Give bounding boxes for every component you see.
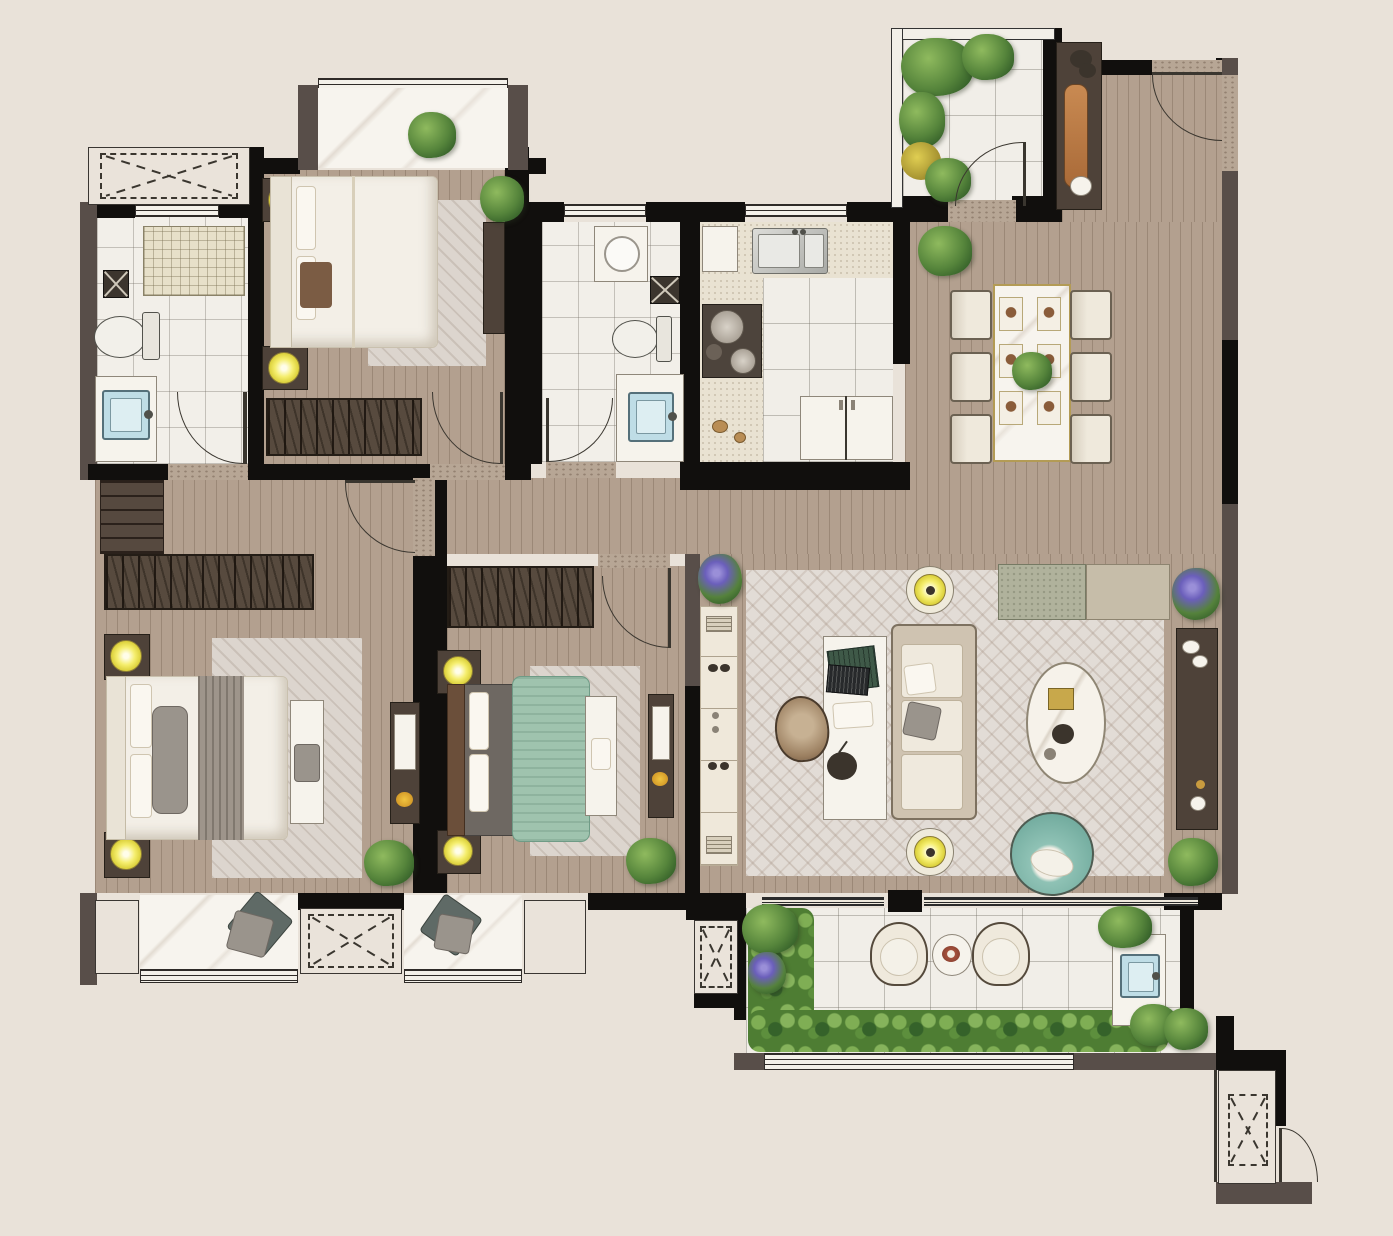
shower-mat bbox=[143, 226, 245, 296]
window-midbed-bay bbox=[404, 969, 522, 983]
midbed-lamp-1 bbox=[443, 656, 473, 686]
wall-bath1-bottom bbox=[88, 464, 172, 480]
shelf-item-2 bbox=[720, 664, 730, 672]
sofa-cushion-3 bbox=[901, 754, 963, 810]
tv-item-1 bbox=[1182, 640, 1200, 654]
wall-kitchen-right bbox=[893, 202, 910, 364]
closet-x bbox=[1228, 1094, 1268, 1166]
dining-chair-3 bbox=[950, 414, 992, 464]
window-bath1 bbox=[135, 204, 219, 217]
tv-item-2 bbox=[1192, 655, 1208, 668]
dining-centerpiece bbox=[1012, 352, 1052, 390]
garden-plant-3 bbox=[899, 92, 945, 148]
shelf-item-5 bbox=[712, 712, 719, 719]
bed-mid-blanket-green bbox=[512, 676, 590, 842]
wardrobe-bedroom-top bbox=[266, 398, 422, 456]
master-bench-2-flower bbox=[396, 792, 413, 807]
midbed-bench-2-blanket bbox=[652, 706, 670, 760]
sink-1-faucet bbox=[144, 410, 153, 419]
shelf-books-top bbox=[706, 616, 732, 632]
desk-books-dark bbox=[826, 664, 870, 696]
floor-plan-canvas bbox=[0, 0, 1393, 1236]
wall-closet-top bbox=[1216, 1050, 1286, 1070]
bay-pier-right bbox=[524, 900, 586, 974]
cooktop-knob bbox=[706, 344, 722, 360]
desk-lamp bbox=[827, 752, 857, 780]
display-shelf bbox=[700, 606, 738, 866]
coffee-table bbox=[1026, 662, 1106, 784]
fridge-handle-2 bbox=[851, 400, 855, 410]
bed-mid-headboard bbox=[447, 684, 465, 836]
balcony-chair-2-seat bbox=[982, 938, 1020, 976]
entry-plate-2 bbox=[1079, 63, 1096, 78]
master-lamp-2 bbox=[110, 838, 142, 870]
plant-bedroom-top bbox=[480, 176, 524, 222]
plant-living-bottomright bbox=[1168, 838, 1218, 886]
balcony-chair-1-seat bbox=[880, 938, 918, 976]
threshold-bath2 bbox=[546, 462, 616, 478]
bath1-door-leaf bbox=[243, 392, 247, 464]
garden-plant-1 bbox=[901, 38, 973, 96]
wall-railing-right bbox=[1074, 1053, 1216, 1070]
plant-master bbox=[364, 840, 414, 886]
threshold-entry-side bbox=[1222, 75, 1238, 171]
wall-right-window bbox=[1222, 340, 1238, 504]
midbed-lamp-2 bbox=[443, 836, 473, 866]
sliding-door-track-right bbox=[924, 897, 1198, 906]
floorlamp-top-center bbox=[926, 586, 935, 595]
wall-right-2 bbox=[1222, 222, 1238, 340]
shelf-item-4 bbox=[720, 762, 729, 770]
balcony-plant-left bbox=[742, 904, 798, 954]
plant-midbed bbox=[626, 838, 676, 884]
window-kitchen bbox=[745, 204, 847, 217]
midbed-bench-2-flower bbox=[652, 772, 668, 786]
bay-top-col-left bbox=[298, 85, 318, 170]
wall-closet-right-stub bbox=[1276, 1070, 1286, 1126]
cooktop-burner-1 bbox=[710, 310, 744, 344]
builtin-wardrobe-top bbox=[483, 222, 505, 334]
tv-item-4 bbox=[1190, 796, 1206, 811]
shelf-books-bottom bbox=[706, 836, 732, 854]
window-balcony-railing bbox=[764, 1053, 1074, 1070]
place-setting-5 bbox=[999, 391, 1023, 425]
kitchen-sink-basin-2 bbox=[804, 234, 824, 268]
threshold-master bbox=[413, 478, 435, 556]
shelf-item-3 bbox=[708, 762, 717, 770]
duct-bath1 bbox=[103, 270, 129, 298]
threshold-bedroom-top bbox=[430, 464, 505, 480]
garden-plant-2 bbox=[962, 34, 1014, 80]
midbed-bench-item bbox=[591, 738, 611, 770]
tv-item-3 bbox=[1196, 780, 1205, 789]
wall-hall-stub bbox=[433, 478, 447, 556]
master-bench-cushion bbox=[294, 744, 320, 782]
wall-closet-left-line bbox=[1214, 1070, 1217, 1182]
bed-master-pillow-1 bbox=[130, 684, 152, 748]
balcony-plant-bottomright-2 bbox=[1164, 1008, 1208, 1050]
balcony-sink-basin bbox=[1128, 962, 1154, 992]
ac-platform-topleft-x bbox=[100, 153, 238, 199]
master-bench-2-blanket bbox=[394, 714, 416, 770]
wall-bedroom-door-stub bbox=[505, 464, 531, 480]
chaise-right bbox=[1086, 564, 1170, 620]
kitchen-door-panel bbox=[702, 226, 738, 272]
washer-drum bbox=[604, 236, 640, 272]
sofa-pillow-grey bbox=[902, 701, 942, 741]
place-setting-2 bbox=[1037, 297, 1061, 331]
toilet-2-tank bbox=[656, 316, 672, 362]
dining-chair-4 bbox=[1070, 290, 1112, 340]
window-bath2 bbox=[564, 204, 646, 217]
threshold-bath1 bbox=[168, 464, 248, 480]
wall-balcony-right bbox=[1180, 908, 1194, 1016]
garden-door-leaf bbox=[1023, 142, 1026, 206]
wall-bedroom-top-l bbox=[250, 158, 300, 174]
cooktop-burner-2 bbox=[730, 348, 756, 374]
toilet-1-bowl bbox=[94, 316, 146, 358]
entry-bowl bbox=[1070, 176, 1092, 196]
wall-railing-left bbox=[734, 1053, 764, 1070]
bed-top-pillow-1 bbox=[296, 186, 316, 250]
closet-door-arc bbox=[1282, 1128, 1318, 1182]
bedroom-top-door-leaf bbox=[500, 392, 503, 464]
place-setting-6 bbox=[1037, 391, 1061, 425]
kitchen-sink-basin-1 bbox=[758, 234, 800, 268]
wall-midbed-living-lower bbox=[685, 686, 700, 893]
kitchen-faucet-2 bbox=[800, 229, 806, 235]
midbed-wardrobe bbox=[447, 566, 594, 628]
bed-mid-pillow-2 bbox=[469, 754, 489, 812]
plant-dining-corner bbox=[918, 226, 972, 276]
plant-living-topright bbox=[1172, 568, 1220, 620]
place-setting-1 bbox=[999, 297, 1023, 331]
dining-chair-5 bbox=[1070, 352, 1112, 402]
balcony-plant-purple bbox=[748, 952, 786, 994]
wall-track-center bbox=[888, 890, 922, 912]
coffee-decor-gold bbox=[1048, 688, 1074, 710]
bed-master-runner bbox=[198, 676, 244, 840]
kitchen-bowl-1 bbox=[712, 420, 728, 433]
wall-right-3 bbox=[1222, 504, 1238, 894]
flower-pot-bay bbox=[408, 112, 456, 158]
ac-platform-bay-x bbox=[308, 914, 394, 968]
wall-bath2-top-a bbox=[542, 202, 564, 222]
floorlamp-bottom-center bbox=[926, 848, 935, 857]
bed-master-throw bbox=[152, 706, 188, 814]
shelf-item-1 bbox=[708, 664, 718, 672]
master-wardrobe bbox=[104, 554, 314, 610]
coffee-decor-small bbox=[1044, 748, 1056, 760]
dining-chair-1 bbox=[950, 290, 992, 340]
chaise-left bbox=[998, 564, 1086, 620]
bed-top-foldline bbox=[352, 176, 355, 348]
bay-top-col-right bbox=[508, 85, 528, 170]
wall-bath2-left bbox=[529, 202, 542, 464]
wall-shaft-bottom bbox=[694, 994, 746, 1008]
coffee-decor-dark bbox=[1052, 724, 1074, 744]
kitchen-bowl-2 bbox=[734, 432, 746, 443]
toilet-1-tank bbox=[142, 312, 160, 360]
wall-closet-bottom bbox=[1216, 1182, 1312, 1204]
dining-chair-2 bbox=[950, 352, 992, 402]
lamp-top-2 bbox=[268, 352, 300, 384]
bed-master-pillow-2 bbox=[130, 754, 152, 818]
master-corner-wardrobe bbox=[100, 480, 164, 554]
wall-bedrooms-top bbox=[246, 464, 432, 480]
balcony-hedge-bottom bbox=[748, 1010, 1168, 1052]
sink-2-faucet bbox=[668, 412, 677, 421]
bed-mid-pillow-1 bbox=[469, 692, 489, 750]
window-master-bay bbox=[140, 969, 298, 983]
balcony-plant-topright bbox=[1098, 906, 1152, 948]
entry-vase bbox=[1064, 84, 1088, 188]
toilet-2-bowl bbox=[612, 320, 658, 358]
sofa-pillow-white bbox=[903, 662, 937, 696]
bed-top-headboard bbox=[270, 176, 292, 348]
master-lamp-1 bbox=[110, 640, 142, 672]
balcony-sink-faucet bbox=[1152, 972, 1160, 980]
wall-kitchen-top-a bbox=[700, 202, 745, 222]
plant-shelf-top bbox=[698, 554, 742, 604]
sink-1-basin bbox=[110, 398, 142, 432]
wall-under-midbed bbox=[588, 893, 698, 910]
desk-papers bbox=[832, 701, 874, 730]
sink-2-basin bbox=[636, 400, 666, 434]
shelf-item-6 bbox=[712, 726, 719, 733]
balcony-table-decor bbox=[942, 946, 960, 962]
kitchen-faucet-1 bbox=[792, 229, 798, 235]
bed-top-throw bbox=[300, 262, 332, 308]
wall-kitchen-bottom bbox=[680, 462, 910, 490]
duct-bath2 bbox=[650, 276, 680, 304]
bed-master-headboard bbox=[106, 676, 126, 840]
dining-chair-6 bbox=[1070, 414, 1112, 464]
fridge-divider bbox=[845, 396, 847, 460]
midbed-bay-pillow-grey bbox=[433, 913, 475, 955]
threshold-bedroom-middle bbox=[598, 554, 670, 568]
shaft-balcony-x bbox=[700, 926, 732, 988]
bay-pier-left bbox=[95, 900, 139, 974]
fridge-handle-1 bbox=[839, 400, 843, 410]
